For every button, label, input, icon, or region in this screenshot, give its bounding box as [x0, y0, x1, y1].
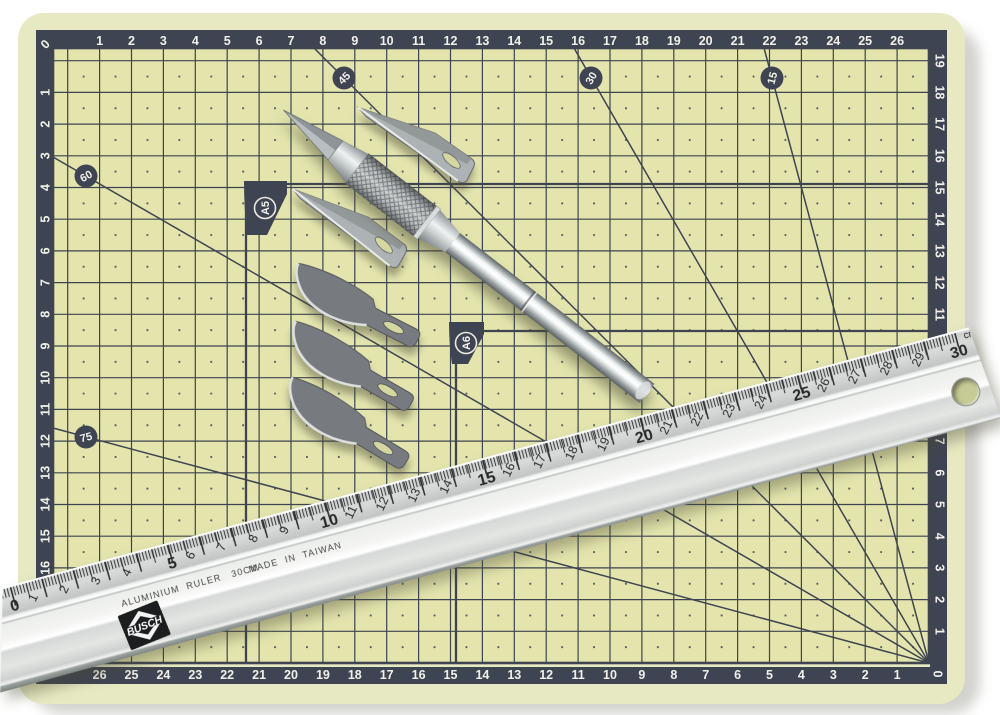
mat-right-scale-number: 3: [933, 564, 947, 571]
mat-bottom-scale-number: 24: [156, 668, 170, 682]
mat-right-scale-number: 14: [933, 212, 947, 226]
mat-right-scale-number: 6: [933, 469, 947, 476]
mat-left-scale-number: 2: [39, 121, 53, 128]
mat-left-scale-number: 5: [39, 216, 53, 223]
mat-top-scale-number: 12: [444, 34, 458, 48]
mat-top-scale-number: 4: [192, 34, 199, 48]
photo-stage: 4530156075 A5A6 123456789101112131415161…: [0, 0, 1000, 715]
mat-top-scale-number: 19: [667, 34, 681, 48]
mat-top-scale-number: 18: [635, 34, 649, 48]
mat-bottom-scale-number: 10: [603, 668, 617, 682]
mat-left-scale-number: 13: [39, 466, 53, 480]
mat-left-scale-number: 4: [39, 184, 53, 191]
mat-left-scale-number: 10: [39, 371, 53, 385]
mat-bottom-scale-number: 21: [252, 668, 266, 682]
mat-bottom-scale-number: 2: [862, 668, 869, 682]
mat-right-scale-number: 13: [933, 244, 947, 258]
mat-right-scale-number: 19: [933, 54, 947, 68]
mat-top-scale-number: 16: [571, 34, 585, 48]
mat-left-scale-number: 6: [39, 247, 53, 254]
mat-bottom-scale-number: 3: [830, 668, 837, 682]
mat-top-scale-number: 17: [603, 34, 617, 48]
mat-bottom-scale-number: 20: [284, 668, 298, 682]
mat-left-scale-number: 1: [39, 89, 53, 96]
mat-bottom-scale-number: 4: [798, 668, 805, 682]
mat-top-scale-number: 8: [319, 34, 326, 48]
mat-top-scale-number: 15: [539, 34, 553, 48]
mat-top-scale-number: 11: [412, 34, 425, 48]
mat-right-scale-number: 12: [933, 276, 947, 290]
mat-left-scale-number: 14: [39, 498, 53, 512]
mat-bottom-scale-number: 15: [444, 668, 458, 682]
mat-bottom-scale-number: 7: [702, 668, 709, 682]
mat-left-scale-number: 9: [39, 342, 53, 349]
mat-top-scale-number: 26: [890, 34, 904, 48]
mat-left-scale-number: 3: [39, 152, 53, 159]
mat-top-scale-number: 24: [826, 34, 840, 48]
mat-top-scale-number: 10: [380, 34, 394, 48]
mat-bottom-scale-number: 16: [412, 668, 426, 682]
mat-right-scale-number: 11: [933, 308, 947, 321]
mat-bottom-scale-number: 14: [475, 668, 489, 682]
mat-band-segment: [36, 667, 947, 684]
mat-top-scale-number: 5: [224, 34, 231, 48]
mat-right-scale-number: 15: [933, 181, 947, 195]
size-marker-label: A5: [260, 201, 272, 215]
mat-right-scale-number: 16: [933, 149, 947, 163]
mat-top-scale-number: 13: [475, 34, 489, 48]
mat-top-scale-number: 23: [794, 34, 808, 48]
mat-left-scale-number: 8: [39, 311, 53, 318]
mat-bottom-scale-number: 17: [380, 668, 394, 682]
mat-top-scale-number: 6: [256, 34, 263, 48]
mat-right-scale-number: 1: [933, 628, 947, 635]
mat-bottom-scale-number: 11: [571, 668, 584, 682]
mat-left-scale-number: 15: [39, 529, 53, 543]
ruler-origin-text: MADE IN TAIWAN: [248, 540, 343, 575]
ruler-unit-label: cm: [962, 328, 978, 342]
mat-top-scale-number: 9: [351, 34, 358, 48]
ruler-number: 30: [948, 342, 970, 364]
mat-top-scale-number: 21: [731, 34, 745, 48]
mat-bottom-scale-number: 25: [125, 668, 139, 682]
mat-top-scale-number: 20: [699, 34, 713, 48]
mat-top-scale-number: 1: [96, 34, 103, 48]
mat-bottom-scale-number: 23: [188, 668, 202, 682]
mat-bottom-scale-number: 8: [670, 668, 677, 682]
mat-bottom-scale-number: 6: [734, 668, 741, 682]
mat-left-scale-number: 16: [39, 561, 53, 575]
size-marker-label: A6: [461, 336, 473, 350]
mat-top-scale-number: 22: [763, 34, 777, 48]
mat-top-scale-number: 7: [288, 34, 295, 48]
mat-right-scale-number: 18: [933, 85, 947, 99]
mat-left-scale-number: 12: [39, 434, 53, 448]
mat-right-scale-number: 4: [933, 533, 947, 540]
mat-right-scale-number: 5: [933, 501, 947, 508]
mat-top-scale-number: 2: [128, 34, 135, 48]
mat-bottom-scale-number: 1: [894, 668, 901, 682]
mat-right-scale-number: 2: [933, 596, 947, 603]
mat-band-segment: [36, 30, 947, 47]
mat-top-scale-number: 3: [160, 34, 167, 48]
mat-bottom-scale-number: 26: [93, 668, 107, 682]
mat-bottom-scale-number: 9: [638, 668, 645, 682]
mat-top-scale-number: 14: [507, 34, 521, 48]
mat-bottom-scale-number: 5: [766, 668, 773, 682]
mat-left-scale-number: 7: [39, 279, 53, 286]
mat-bottom-scale-number: 13: [507, 668, 521, 682]
mat-bottom-scale-number: 18: [348, 668, 362, 682]
mat-corner-zero: 0: [931, 671, 945, 678]
mat-right-scale-number: 17: [933, 117, 947, 131]
ruler-hanging-hole: [948, 374, 984, 410]
mat-left-scale-number: 11: [39, 403, 53, 416]
mat-bottom-scale-number: 22: [220, 668, 234, 682]
mat-bottom-scale-number: 12: [539, 668, 553, 682]
mat-bottom-scale-number: 19: [316, 668, 330, 682]
mat-top-scale-number: 25: [858, 34, 872, 48]
